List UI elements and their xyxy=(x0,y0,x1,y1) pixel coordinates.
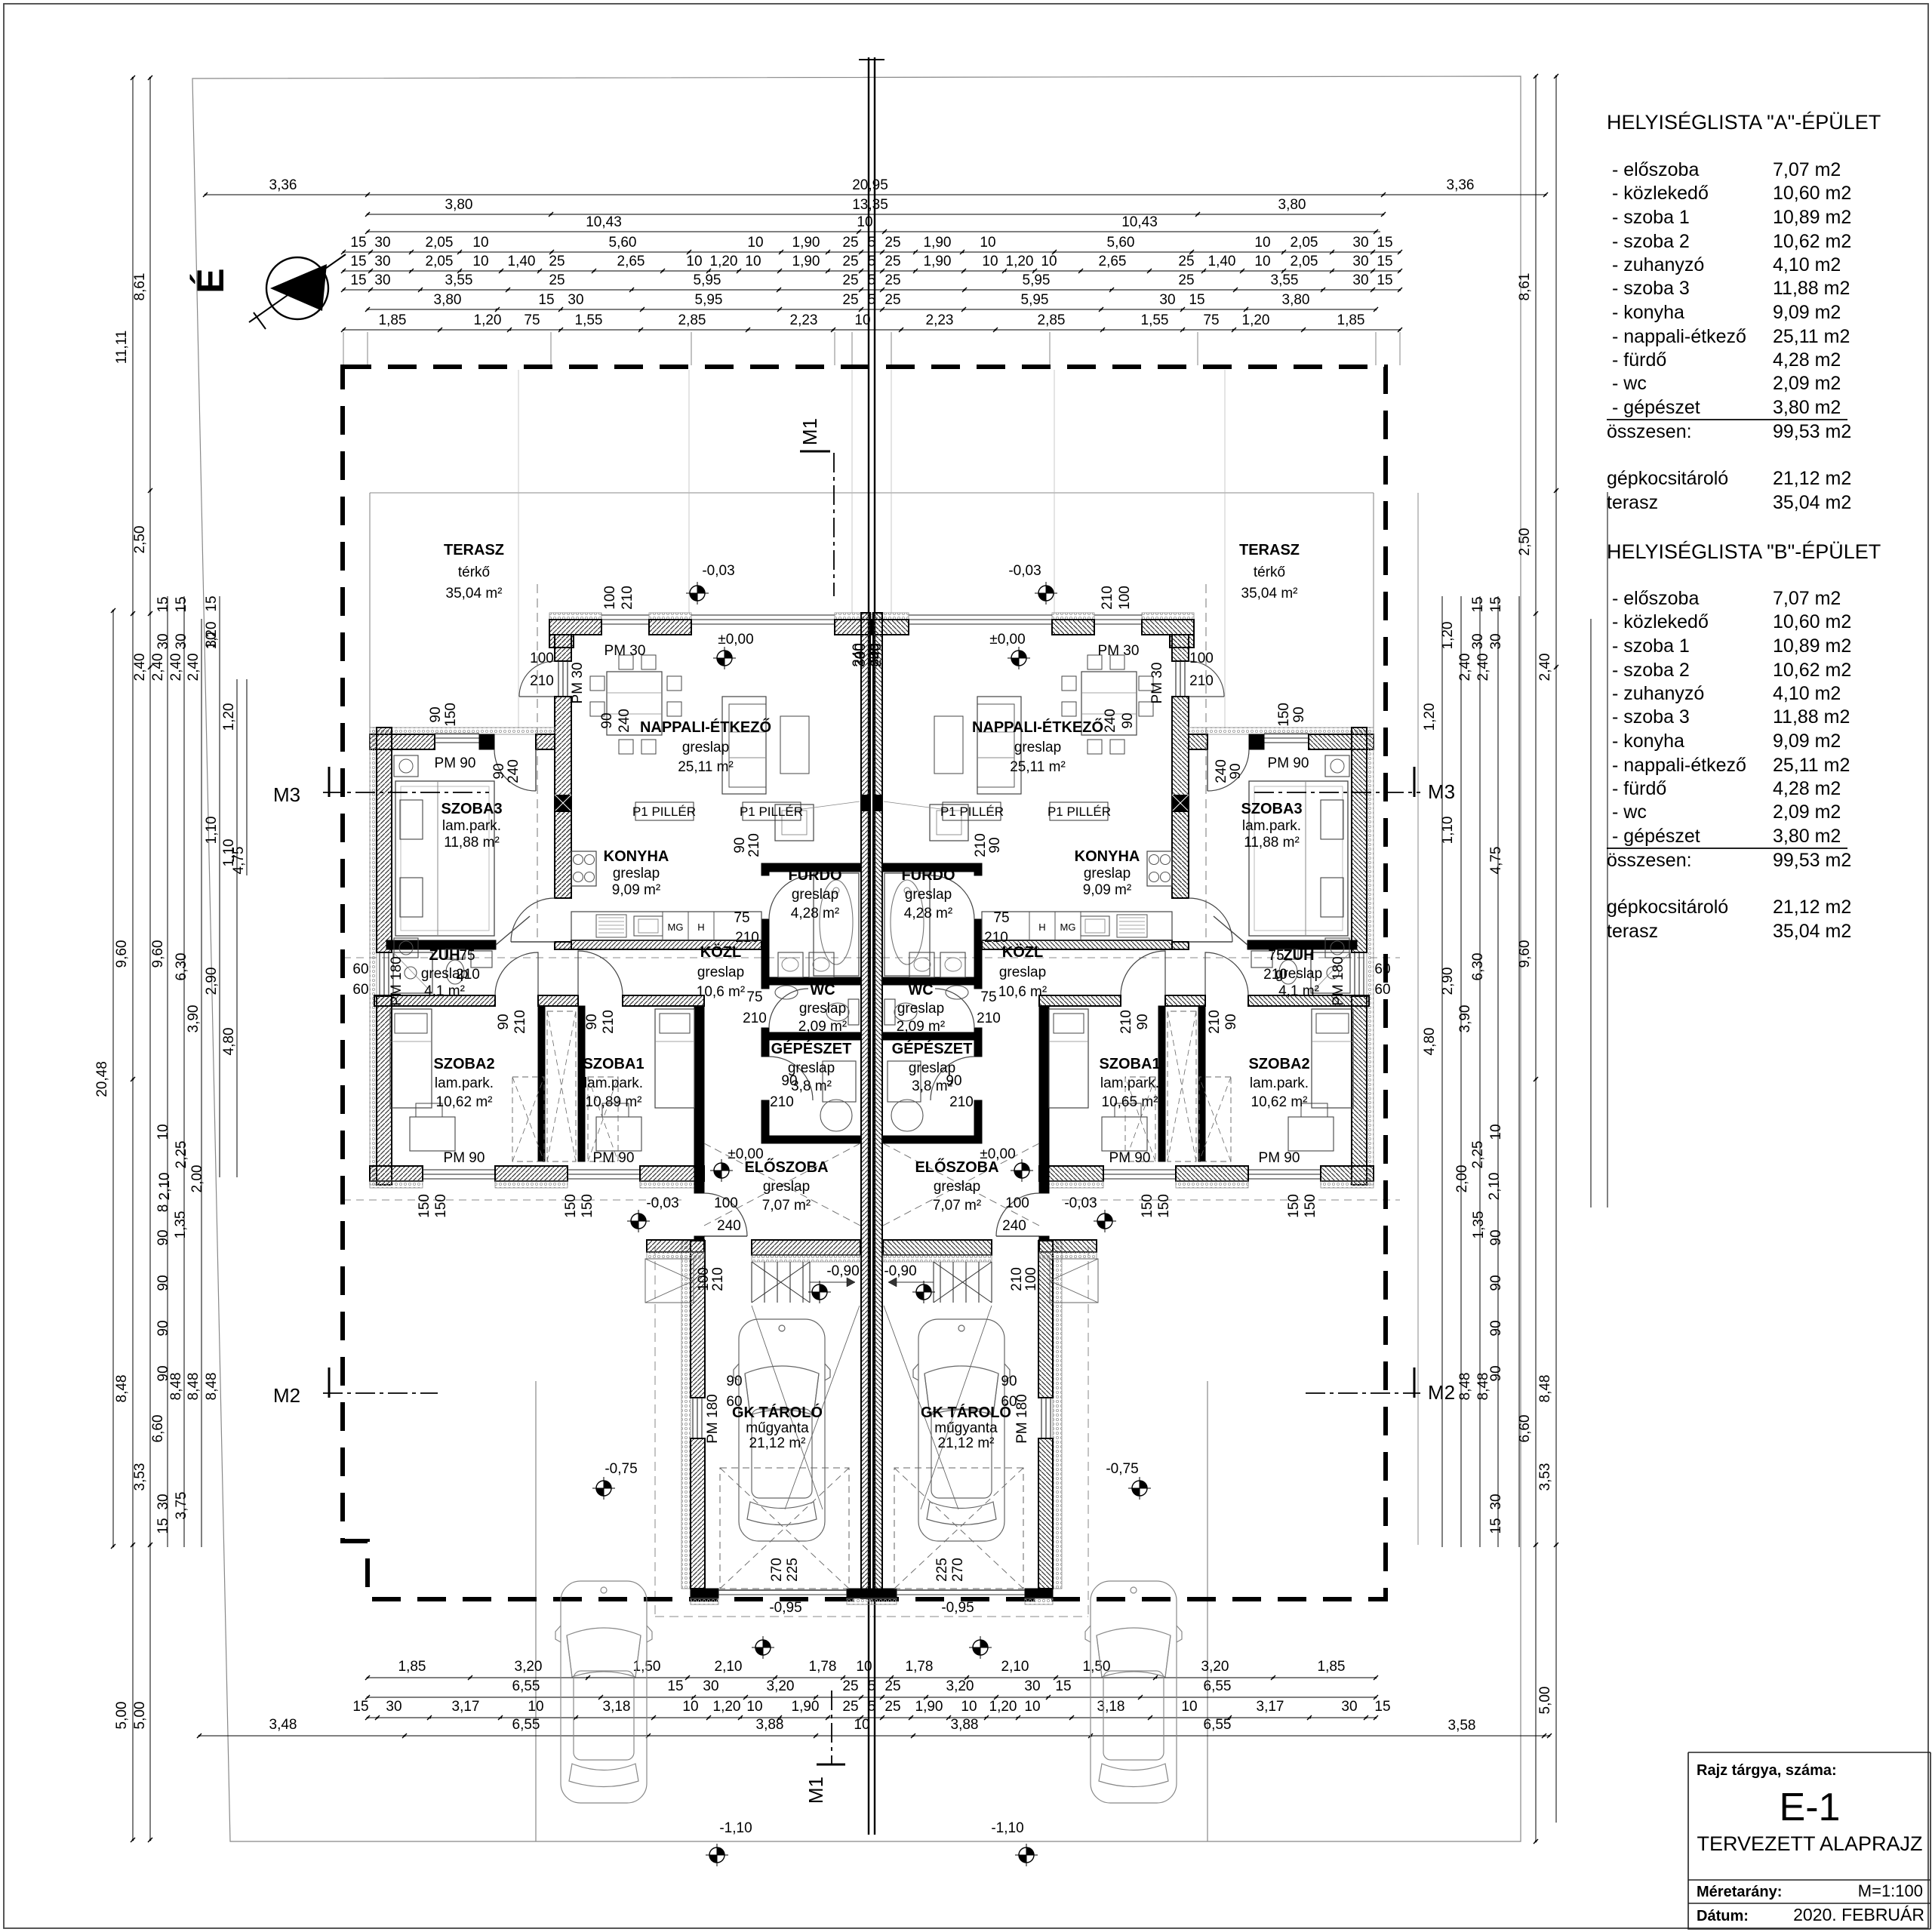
svg-text:2,40: 2,40 xyxy=(168,654,184,681)
svg-text:3,53: 3,53 xyxy=(1537,1463,1553,1491)
svg-text:25: 25 xyxy=(842,292,858,308)
svg-text:10: 10 xyxy=(155,1124,171,1140)
svg-text:5,95: 5,95 xyxy=(695,292,723,308)
svg-text:PM 180: PM 180 xyxy=(1331,956,1346,1005)
svg-text:210: 210 xyxy=(984,930,1008,946)
svg-text:P1 PILLÉR: P1 PILLÉR xyxy=(940,804,1004,819)
svg-text:összesen:: összesen: xyxy=(1607,421,1692,442)
svg-text:150: 150 xyxy=(1140,1194,1155,1218)
svg-text:PM 30: PM 30 xyxy=(1098,643,1140,659)
svg-text:SZOBA2: SZOBA2 xyxy=(1248,1056,1309,1072)
svg-text:90: 90 xyxy=(1291,706,1307,722)
svg-text:240: 240 xyxy=(617,709,632,733)
svg-text:30: 30 xyxy=(386,1699,401,1715)
svg-text:3,20: 3,20 xyxy=(515,1659,543,1675)
svg-text:1,78: 1,78 xyxy=(906,1659,934,1675)
svg-text:lam.park.: lam.park. xyxy=(1100,1075,1159,1091)
svg-text:greslap: greslap xyxy=(934,1179,980,1195)
svg-text:8,48: 8,48 xyxy=(168,1373,184,1401)
svg-text:240: 240 xyxy=(717,1218,741,1234)
svg-text:21,12 m2: 21,12 m2 xyxy=(1773,468,1851,489)
svg-text:- szoba 3: - szoba 3 xyxy=(1612,706,1690,728)
svg-text:-0,90: -0,90 xyxy=(884,1263,916,1279)
svg-text:10: 10 xyxy=(472,254,488,269)
svg-text:210: 210 xyxy=(530,673,554,689)
svg-text:2,05: 2,05 xyxy=(1291,254,1318,269)
svg-text:210: 210 xyxy=(977,1011,1001,1026)
svg-text:MG: MG xyxy=(1060,921,1076,933)
svg-text:100: 100 xyxy=(530,651,554,666)
svg-text:4,75: 4,75 xyxy=(1488,847,1504,875)
svg-text:25: 25 xyxy=(884,1699,900,1715)
svg-text:2,65: 2,65 xyxy=(1099,254,1127,269)
svg-text:3,17: 3,17 xyxy=(1257,1699,1284,1715)
svg-text:2,00: 2,00 xyxy=(189,1165,205,1193)
svg-text:PM 30: PM 30 xyxy=(1149,663,1165,704)
svg-text:7,07 m²: 7,07 m² xyxy=(933,1198,981,1214)
svg-text:- fürdő: - fürdő xyxy=(1612,778,1666,799)
svg-text:8,48: 8,48 xyxy=(1457,1373,1473,1401)
svg-text:99,53 m2: 99,53 m2 xyxy=(1773,850,1851,871)
svg-text:- zuhanyzó: - zuhanyzó xyxy=(1612,683,1704,704)
svg-text:60: 60 xyxy=(1374,961,1390,977)
svg-text:10: 10 xyxy=(1254,254,1270,269)
svg-text:10: 10 xyxy=(747,235,763,251)
svg-text:H: H xyxy=(1038,921,1045,933)
svg-text:4,28 m2: 4,28 m2 xyxy=(1773,778,1841,799)
svg-text:4,28 m2: 4,28 m2 xyxy=(1773,349,1841,371)
svg-text:15: 15 xyxy=(350,235,366,251)
svg-text:25: 25 xyxy=(842,254,858,269)
svg-text:10: 10 xyxy=(1181,1699,1197,1715)
svg-text:greslap: greslap xyxy=(682,740,729,755)
svg-text:1,55: 1,55 xyxy=(575,312,603,328)
svg-text:15: 15 xyxy=(1488,1518,1504,1534)
svg-text:PM 90: PM 90 xyxy=(444,1150,485,1166)
svg-text:150: 150 xyxy=(563,1194,579,1218)
svg-text:25: 25 xyxy=(884,254,900,269)
svg-text:8: 8 xyxy=(155,1204,171,1213)
svg-text:3,55: 3,55 xyxy=(1271,272,1299,288)
svg-text:4,80: 4,80 xyxy=(221,1028,237,1056)
svg-text:greslap: greslap xyxy=(613,866,660,881)
svg-text:210: 210 xyxy=(770,1094,794,1110)
svg-text:- nappali-étkező: - nappali-étkező xyxy=(1612,326,1746,347)
svg-text:10,6 m²: 10,6 m² xyxy=(998,984,1047,1000)
svg-text:1,85: 1,85 xyxy=(1337,312,1365,328)
svg-text:3,88: 3,88 xyxy=(951,1717,979,1733)
svg-text:15: 15 xyxy=(155,1518,171,1534)
svg-text:30: 30 xyxy=(1341,1699,1357,1715)
svg-text:9,09 m²: 9,09 m² xyxy=(612,882,660,898)
svg-text:FÜRDŐ: FÜRDŐ xyxy=(788,866,841,884)
svg-text:- szoba 2: - szoba 2 xyxy=(1612,660,1690,681)
svg-text:greslap: greslap xyxy=(763,1179,810,1195)
svg-text:FÜRDŐ: FÜRDŐ xyxy=(901,866,955,884)
svg-text:25: 25 xyxy=(842,272,858,288)
svg-text:P1 PILLÉR: P1 PILLÉR xyxy=(740,804,803,819)
svg-text:150: 150 xyxy=(433,1194,449,1218)
svg-text:90: 90 xyxy=(1120,712,1136,728)
svg-text:5,95: 5,95 xyxy=(694,272,721,288)
svg-text:10,43: 10,43 xyxy=(586,214,622,230)
svg-text:150: 150 xyxy=(580,1194,595,1218)
svg-text:P1 PILLÉR: P1 PILLÉR xyxy=(632,804,696,819)
svg-text:1,20: 1,20 xyxy=(713,1699,741,1715)
svg-text:10: 10 xyxy=(686,254,702,269)
svg-text:2,10: 2,10 xyxy=(157,1173,173,1201)
svg-text:7,07 m2: 7,07 m2 xyxy=(1773,588,1841,609)
svg-text:3,80 m2: 3,80 m2 xyxy=(1773,397,1841,418)
svg-text:lam.park.: lam.park. xyxy=(1242,818,1301,834)
svg-text:15: 15 xyxy=(1488,596,1504,612)
svg-text:WC: WC xyxy=(908,982,933,998)
svg-text:5,95: 5,95 xyxy=(1021,292,1049,308)
svg-text:9,60: 9,60 xyxy=(1517,940,1533,968)
svg-text:H: H xyxy=(697,921,704,933)
svg-text:30: 30 xyxy=(374,272,390,288)
svg-text:-0,03: -0,03 xyxy=(1064,1195,1097,1211)
svg-text:25: 25 xyxy=(549,254,565,269)
svg-text:30: 30 xyxy=(1024,1678,1040,1694)
svg-text:6,60: 6,60 xyxy=(150,1415,166,1443)
svg-text:P1 PILLÉR: P1 PILLÉR xyxy=(1048,804,1111,819)
svg-text:NAPPALI-ÉTKEZŐ: NAPPALI-ÉTKEZŐ xyxy=(972,718,1103,736)
svg-text:90: 90 xyxy=(599,712,615,728)
svg-text:15: 15 xyxy=(538,292,554,308)
svg-text:30: 30 xyxy=(155,1494,171,1509)
svg-text:10,60 m2: 10,60 m2 xyxy=(1773,183,1851,204)
svg-text:60: 60 xyxy=(352,982,368,998)
svg-text:KÖZL: KÖZL xyxy=(700,943,741,961)
svg-text:6,55: 6,55 xyxy=(512,1678,540,1694)
svg-text:90: 90 xyxy=(155,1320,171,1336)
svg-text:99,53 m2: 99,53 m2 xyxy=(1773,421,1851,442)
svg-text:3,80: 3,80 xyxy=(445,197,473,213)
svg-text:- wc: - wc xyxy=(1612,801,1647,823)
svg-text:25,11 m²: 25,11 m² xyxy=(1010,759,1066,775)
svg-text:TERVEZETT ALAPRAJZ: TERVEZETT ALAPRAJZ xyxy=(1697,1832,1922,1855)
svg-text:SZOBA1: SZOBA1 xyxy=(583,1056,644,1072)
svg-text:15: 15 xyxy=(204,595,220,611)
svg-text:2,90: 2,90 xyxy=(1440,968,1456,995)
svg-text:100: 100 xyxy=(1189,651,1214,666)
svg-text:9,60: 9,60 xyxy=(150,940,166,968)
svg-text:6,30: 6,30 xyxy=(174,953,189,981)
svg-text:2,50: 2,50 xyxy=(132,526,148,554)
svg-text:15: 15 xyxy=(1377,235,1392,251)
svg-text:9,09 m²: 9,09 m² xyxy=(1083,882,1131,898)
svg-text:100: 100 xyxy=(1005,1195,1029,1211)
svg-text:90: 90 xyxy=(1001,1374,1017,1389)
svg-text:WC: WC xyxy=(810,982,835,998)
svg-text:90: 90 xyxy=(1488,1320,1504,1336)
svg-text:8,48: 8,48 xyxy=(114,1375,130,1403)
svg-text:210: 210 xyxy=(1009,1267,1025,1291)
svg-text:11,88 m²: 11,88 m² xyxy=(1244,835,1300,851)
svg-text:SZOBA2: SZOBA2 xyxy=(433,1056,494,1072)
svg-text:5,00: 5,00 xyxy=(114,1702,130,1730)
svg-text:-0,03: -0,03 xyxy=(702,563,734,579)
svg-text:1,20: 1,20 xyxy=(474,312,502,328)
svg-text:- gépészet: - gépészet xyxy=(1612,397,1700,418)
svg-text:90: 90 xyxy=(1488,1275,1504,1291)
svg-text:M2: M2 xyxy=(1428,1381,1455,1404)
svg-text:M3: M3 xyxy=(273,783,300,806)
svg-text:M1: M1 xyxy=(798,418,821,445)
svg-text:greslap: greslap xyxy=(792,887,838,903)
svg-text:2,85: 2,85 xyxy=(1038,312,1066,328)
svg-text:150: 150 xyxy=(417,1194,432,1218)
svg-text:5,95: 5,95 xyxy=(1023,272,1051,288)
svg-text:3,20: 3,20 xyxy=(1201,1659,1229,1675)
svg-text:3,36: 3,36 xyxy=(269,177,297,193)
svg-text:90: 90 xyxy=(946,1073,961,1089)
svg-text:3,53: 3,53 xyxy=(132,1463,148,1491)
svg-text:SZOBA3: SZOBA3 xyxy=(1241,801,1302,817)
svg-text:210: 210 xyxy=(601,1010,617,1034)
svg-text:- előszoba: - előszoba xyxy=(1612,588,1699,609)
svg-text:35,04 m²: 35,04 m² xyxy=(446,586,503,601)
svg-text:5: 5 xyxy=(868,1699,876,1715)
svg-text:PM 90: PM 90 xyxy=(435,755,476,771)
svg-text:ZUH: ZUH xyxy=(1283,947,1314,964)
svg-text:-0,75: -0,75 xyxy=(605,1461,637,1477)
svg-text:15: 15 xyxy=(1377,272,1392,288)
svg-text:KONYHA: KONYHA xyxy=(604,848,669,865)
svg-text:150: 150 xyxy=(1286,1194,1302,1218)
svg-text:M2: M2 xyxy=(273,1384,300,1407)
svg-text:lam.park.: lam.park. xyxy=(435,1075,494,1091)
svg-text:GK TÁROLÓ: GK TÁROLÓ xyxy=(732,1403,823,1421)
svg-text:greslap: greslap xyxy=(1084,866,1131,881)
svg-text:1,20: 1,20 xyxy=(989,1699,1017,1715)
svg-text:10: 10 xyxy=(854,312,870,328)
svg-text:1,90: 1,90 xyxy=(924,235,952,251)
svg-text:10: 10 xyxy=(1041,254,1057,269)
svg-text:21,12 m2: 21,12 m2 xyxy=(1773,897,1851,918)
svg-text:3,75: 3,75 xyxy=(174,1492,189,1520)
svg-text:2,09 m2: 2,09 m2 xyxy=(1773,373,1841,394)
svg-text:9,09 m2: 9,09 m2 xyxy=(1773,731,1841,752)
svg-text:25: 25 xyxy=(884,1678,900,1694)
svg-text:75: 75 xyxy=(524,312,540,328)
svg-text:10,89 m2: 10,89 m2 xyxy=(1773,635,1851,657)
svg-text:30: 30 xyxy=(374,235,390,251)
svg-text:3,90: 3,90 xyxy=(186,1005,202,1033)
svg-text:PM 30: PM 30 xyxy=(605,643,646,659)
svg-text:240: 240 xyxy=(869,643,884,667)
svg-text:4,10 m2: 4,10 m2 xyxy=(1773,254,1841,275)
svg-text:15: 15 xyxy=(1470,596,1486,612)
svg-text:8,48: 8,48 xyxy=(204,1373,220,1401)
svg-text:3,88: 3,88 xyxy=(756,1717,784,1733)
svg-text:90: 90 xyxy=(155,1275,171,1291)
svg-text:210: 210 xyxy=(512,1010,528,1034)
svg-text:10: 10 xyxy=(854,1717,869,1733)
svg-text:GÉPÉSZET: GÉPÉSZET xyxy=(771,1040,852,1057)
svg-text:1,20: 1,20 xyxy=(1242,312,1270,328)
svg-text:PM 90: PM 90 xyxy=(1268,755,1309,771)
svg-text:10: 10 xyxy=(746,1699,762,1715)
svg-text:-1,10: -1,10 xyxy=(719,1820,752,1836)
svg-text:±0,00: ±0,00 xyxy=(728,1146,763,1162)
svg-text:2,40: 2,40 xyxy=(186,654,202,681)
svg-text:2,50: 2,50 xyxy=(1517,528,1533,556)
svg-text:6,55: 6,55 xyxy=(1204,1717,1232,1733)
svg-text:3,80: 3,80 xyxy=(1282,292,1310,308)
svg-text:8,61: 8,61 xyxy=(1517,273,1533,301)
svg-text:PM 30: PM 30 xyxy=(570,663,586,704)
svg-text:gépkocsitároló: gépkocsitároló xyxy=(1607,468,1728,489)
svg-text:1,85: 1,85 xyxy=(1318,1659,1346,1675)
svg-text:10: 10 xyxy=(856,1659,872,1675)
svg-text:M3: M3 xyxy=(1428,780,1455,803)
svg-text:90: 90 xyxy=(1223,1014,1239,1029)
svg-text:100: 100 xyxy=(602,586,618,610)
svg-text:240: 240 xyxy=(851,643,866,667)
svg-text:5: 5 xyxy=(868,254,876,269)
svg-text:13,35: 13,35 xyxy=(852,197,888,213)
svg-text:- fürdő: - fürdő xyxy=(1612,349,1666,371)
svg-text:15: 15 xyxy=(1374,1699,1390,1715)
svg-text:5,60: 5,60 xyxy=(609,235,637,251)
svg-text:210: 210 xyxy=(973,833,989,857)
svg-text:2,05: 2,05 xyxy=(426,254,454,269)
svg-text:3,36: 3,36 xyxy=(1447,177,1475,193)
svg-text:gépkocsitároló: gépkocsitároló xyxy=(1607,897,1728,918)
svg-text:90: 90 xyxy=(428,706,444,722)
svg-text:PM 90: PM 90 xyxy=(1259,1150,1300,1166)
svg-text:10,62 m2: 10,62 m2 xyxy=(1773,660,1851,681)
svg-text:1,20: 1,20 xyxy=(710,254,738,269)
svg-text:M1: M1 xyxy=(804,1777,827,1804)
svg-text:greslap: greslap xyxy=(905,887,952,903)
svg-text:4,1 m²: 4,1 m² xyxy=(424,983,465,999)
svg-text:3,90: 3,90 xyxy=(1457,1005,1473,1033)
svg-text:Dátum:: Dátum: xyxy=(1697,1908,1749,1924)
svg-text:3,48: 3,48 xyxy=(269,1717,297,1733)
svg-text:60: 60 xyxy=(726,1394,742,1410)
svg-text:15: 15 xyxy=(667,1678,683,1694)
svg-text:1,20: 1,20 xyxy=(1006,254,1034,269)
svg-text:4,80: 4,80 xyxy=(1422,1028,1438,1056)
svg-text:2,90: 2,90 xyxy=(204,968,220,995)
svg-text:5,00: 5,00 xyxy=(132,1702,148,1730)
svg-text:3,58: 3,58 xyxy=(1448,1718,1476,1734)
svg-text:10,65 m²: 10,65 m² xyxy=(1102,1094,1158,1110)
svg-text:210: 210 xyxy=(746,833,762,857)
svg-text:5: 5 xyxy=(868,292,876,308)
svg-text:1,10: 1,10 xyxy=(221,839,237,867)
svg-text:6,30: 6,30 xyxy=(1470,953,1486,981)
svg-text:SZOBA3: SZOBA3 xyxy=(441,801,502,817)
svg-text:90: 90 xyxy=(155,1229,171,1245)
svg-text:25,11 m²: 25,11 m² xyxy=(678,759,734,775)
svg-text:25: 25 xyxy=(549,272,565,288)
svg-text:150: 150 xyxy=(1276,703,1292,727)
svg-text:- előszoba: - előszoba xyxy=(1612,159,1699,180)
svg-text:240: 240 xyxy=(506,759,521,783)
svg-text:210: 210 xyxy=(456,967,480,983)
svg-text:90: 90 xyxy=(1135,1014,1151,1029)
svg-text:210: 210 xyxy=(710,1267,726,1291)
svg-text:15: 15 xyxy=(1055,1678,1071,1694)
svg-text:4,28 m²: 4,28 m² xyxy=(904,906,952,921)
svg-text:75: 75 xyxy=(734,910,749,926)
svg-text:1,78: 1,78 xyxy=(809,1659,837,1675)
svg-text:25: 25 xyxy=(842,1678,858,1694)
svg-text:10,60 m2: 10,60 m2 xyxy=(1773,611,1851,632)
svg-text:KONYHA: KONYHA xyxy=(1075,848,1140,865)
svg-text:210: 210 xyxy=(1118,1010,1134,1034)
svg-text:60: 60 xyxy=(1374,982,1390,998)
svg-text:25: 25 xyxy=(884,272,900,288)
svg-text:1,90: 1,90 xyxy=(792,235,820,251)
svg-text:4,10 m2: 4,10 m2 xyxy=(1773,683,1841,704)
svg-text:10: 10 xyxy=(745,254,761,269)
svg-text:15: 15 xyxy=(1377,254,1392,269)
svg-text:- konyha: - konyha xyxy=(1612,302,1684,323)
svg-text:10: 10 xyxy=(1488,1124,1504,1140)
svg-text:30: 30 xyxy=(1488,1494,1504,1509)
svg-text:térkő: térkő xyxy=(458,565,490,580)
svg-text:2,10: 2,10 xyxy=(1487,1173,1503,1201)
svg-text:6,55: 6,55 xyxy=(512,1717,540,1733)
svg-text:10,43: 10,43 xyxy=(1121,214,1158,230)
svg-text:3,20: 3,20 xyxy=(767,1678,795,1694)
svg-text:3,18: 3,18 xyxy=(1097,1699,1125,1715)
svg-text:10: 10 xyxy=(528,1699,543,1715)
svg-text:90: 90 xyxy=(732,837,748,853)
svg-text:7,07 m2: 7,07 m2 xyxy=(1773,159,1841,180)
svg-text:2,40: 2,40 xyxy=(1475,654,1491,681)
svg-text:10: 10 xyxy=(857,214,872,230)
svg-text:25: 25 xyxy=(1178,254,1194,269)
svg-text:3,80 m2: 3,80 m2 xyxy=(1773,826,1841,847)
svg-text:15: 15 xyxy=(350,254,366,269)
svg-text:30: 30 xyxy=(1352,254,1368,269)
svg-text:±0,00: ±0,00 xyxy=(718,632,753,648)
svg-text:3,18: 3,18 xyxy=(603,1699,631,1715)
svg-text:21,12 m²: 21,12 m² xyxy=(938,1435,995,1451)
svg-text:2,10: 2,10 xyxy=(715,1659,743,1675)
svg-text:270: 270 xyxy=(950,1558,966,1582)
svg-text:270: 270 xyxy=(769,1558,785,1582)
svg-text:75: 75 xyxy=(993,910,1009,926)
svg-text:25: 25 xyxy=(884,235,900,251)
svg-text:1,40: 1,40 xyxy=(508,254,536,269)
svg-text:PM 90: PM 90 xyxy=(1109,1150,1151,1166)
svg-text:25,11 m2: 25,11 m2 xyxy=(1773,755,1850,776)
svg-text:MG: MG xyxy=(668,921,684,933)
svg-text:100: 100 xyxy=(1023,1267,1039,1291)
svg-text:9,09 m2: 9,09 m2 xyxy=(1773,302,1841,323)
svg-text:Rajz tárgya, száma:: Rajz tárgya, száma: xyxy=(1697,1762,1837,1779)
svg-text:1,20: 1,20 xyxy=(221,703,237,731)
svg-text:PM 180: PM 180 xyxy=(389,956,405,1005)
svg-text:2,09 m2: 2,09 m2 xyxy=(1773,801,1841,823)
svg-text:3,17: 3,17 xyxy=(452,1699,480,1715)
svg-text:1,35: 1,35 xyxy=(1471,1211,1487,1239)
svg-text:-0,03: -0,03 xyxy=(1008,563,1041,579)
svg-text:100: 100 xyxy=(714,1195,738,1211)
svg-text:1,35: 1,35 xyxy=(173,1211,189,1239)
svg-text:NAPPALI-ÉTKEZŐ: NAPPALI-ÉTKEZŐ xyxy=(640,718,771,736)
svg-text:2,40: 2,40 xyxy=(132,654,148,681)
svg-text:1,20: 1,20 xyxy=(1422,703,1438,731)
svg-text:210: 210 xyxy=(1263,967,1287,983)
